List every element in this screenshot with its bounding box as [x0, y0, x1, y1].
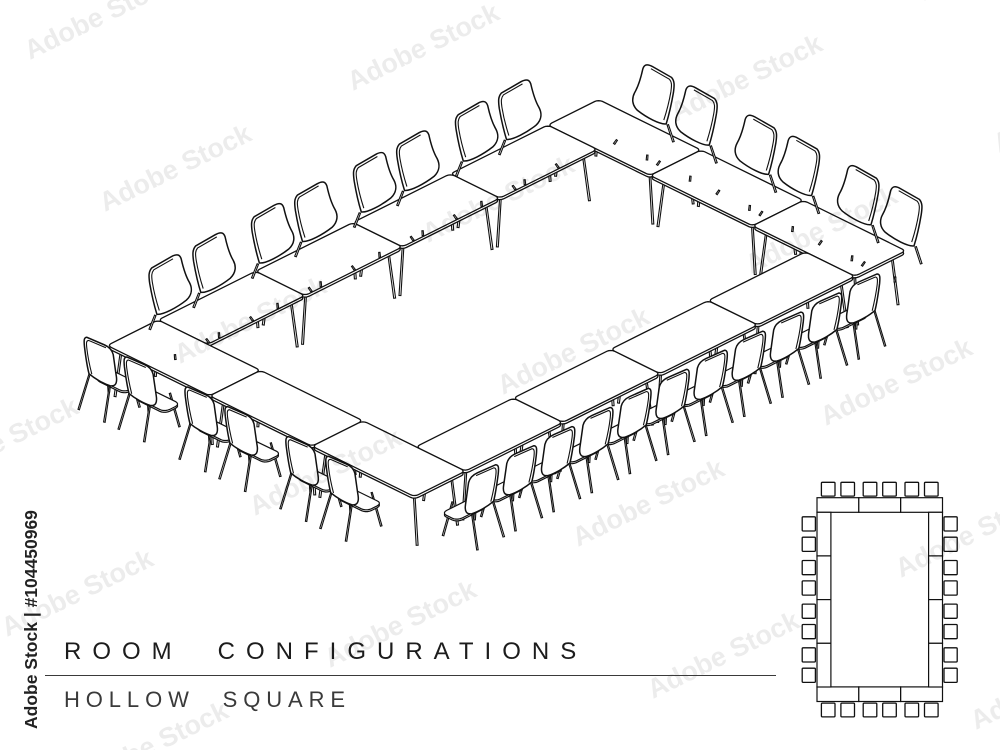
svg-text:Adobe Stock: Adobe Stock [965, 636, 1000, 736]
svg-text:Adobe Stock: Adobe Stock [815, 332, 977, 432]
svg-text:Adobe Stock: Adobe Stock [665, 28, 827, 128]
svg-text:Adobe Stock: Adobe Stock [913, 0, 1000, 6]
svg-text:Adobe Stock: Adobe Stock [567, 453, 729, 553]
svg-text:Adobe Stock: Adobe Stock [988, 59, 1000, 159]
svg-text:Adobe Stock: Adobe Stock [642, 605, 804, 705]
svg-text:Adobe Stock: Adobe Stock [0, 391, 84, 491]
svg-text:Adobe Stock: Adobe Stock [94, 118, 256, 218]
svg-text:Adobe Stock: Adobe Stock [19, 0, 181, 65]
svg-text:Adobe Stock: Adobe Stock [342, 0, 504, 96]
